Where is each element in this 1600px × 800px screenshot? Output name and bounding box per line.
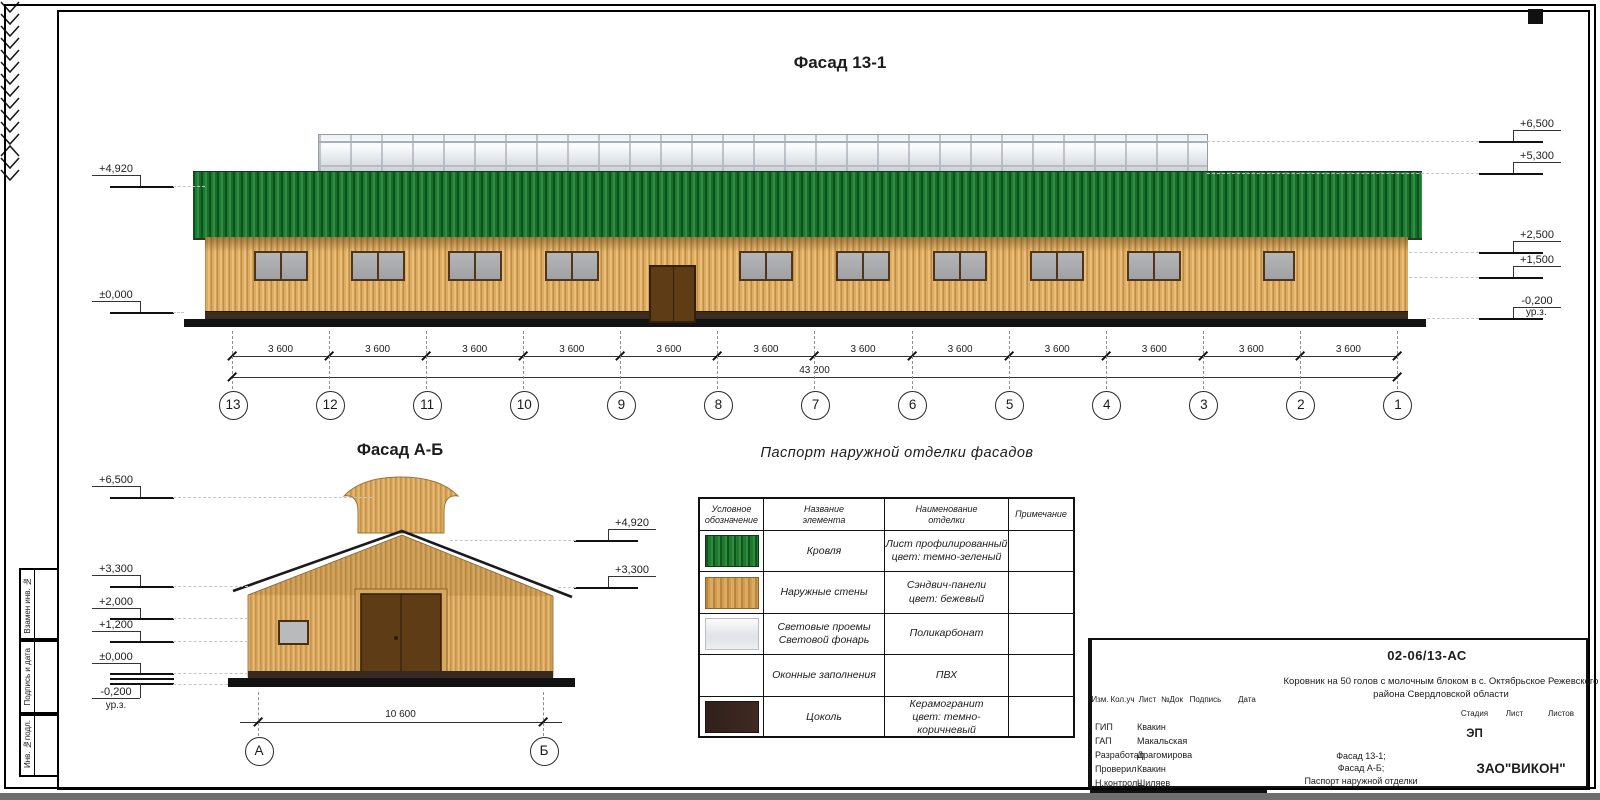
elevation-shelf: [608, 576, 656, 577]
finish-swatch-cell: [700, 614, 764, 655]
title-block-drawing-titles: Фасад 13-1; Фасад А-Б; Паспорт наружной …: [1267, 747, 1455, 790]
staff-role: ГАП: [1092, 734, 1135, 748]
dimension-segment-label: 3 600: [1009, 344, 1106, 355]
axis-bubble: 5: [995, 391, 1024, 420]
elevation-shelf: [1513, 130, 1561, 131]
axis-extension-line: [1009, 331, 1010, 389]
axis-bubble: 1: [1383, 391, 1412, 420]
axis-bubble: А: [245, 737, 274, 766]
revision-header: Лист: [1135, 692, 1160, 706]
title-block-stage-value: ЭП: [1455, 720, 1494, 747]
window-mullion: [959, 253, 961, 279]
finish-table-header: Условное обозначение: [700, 499, 764, 531]
axis-extension-line: [1106, 331, 1107, 389]
finish-material: Сэндвич-панели цвет: бежевый: [885, 572, 1009, 613]
dimension-segment-label: 3 600: [717, 344, 814, 355]
elevation-bar: [110, 641, 174, 643]
finish-swatch-cell: [700, 572, 764, 613]
elevation-label: +1,500: [1499, 254, 1575, 266]
reference-dash-line: [173, 312, 184, 313]
swatch-walls-icon: [705, 577, 759, 609]
revision-header: Подпись: [1184, 692, 1227, 706]
sheet-corner-mark: [1528, 9, 1543, 24]
facade2-gable-shade: [248, 535, 553, 596]
axis-bubble: Б: [530, 737, 559, 766]
title-block: 02-06/13-АС Коровник на 50 голов с молоч…: [1088, 638, 1588, 788]
reference-dash-line: [558, 587, 576, 588]
margin-box-vzamen: Взамен инв. №: [19, 568, 59, 642]
finish-table-title: Паспорт наружной отделки фасадов: [697, 445, 1097, 461]
reference-dash-line: [173, 618, 248, 619]
dimension-segment-label: 3 600: [620, 344, 717, 355]
elevation-label: ±0,000: [78, 289, 154, 301]
facade1-window-pair: [254, 251, 308, 281]
skylight-rail-icon: [319, 141, 1207, 143]
staff-role: ГИП: [1092, 720, 1135, 734]
axis-extension-line: [258, 692, 259, 736]
reference-dash-line: [1207, 141, 1479, 142]
elevation-riser: [1513, 130, 1514, 141]
swatch-skylight-icon: [705, 618, 759, 650]
elevation-shelf: [92, 663, 140, 664]
axis-extension-line: [912, 331, 913, 389]
margin-label: Подпись и дата: [23, 648, 32, 706]
elevation-shelf: [92, 175, 140, 176]
elevation-riser: [608, 529, 609, 540]
elevation-shelf: [92, 608, 140, 609]
dimension-total-label: 10 600: [341, 709, 461, 720]
facade2-plinth: [248, 671, 553, 678]
facade2-title: Фасад А-Б: [300, 441, 500, 460]
elevation-riser: [1513, 162, 1514, 173]
finish-note: [1009, 531, 1073, 572]
window-mullion: [1153, 253, 1155, 279]
axis-extension-line: [523, 331, 524, 389]
staff-name: Квакин: [1134, 762, 1197, 776]
elevation-bar: [1479, 318, 1543, 320]
elevation-label: +5,300: [1499, 150, 1575, 162]
elevation-riser: [140, 175, 141, 186]
ground-level-label: ур.з.: [78, 700, 154, 711]
title-block-project-name: Коровник на 50 голов с молочным блоком в…: [1267, 670, 1600, 707]
axis-extension-line: [1397, 331, 1398, 389]
revision-header: №Док: [1160, 692, 1184, 706]
staff-name: Макальская: [1134, 734, 1197, 748]
window-mullion: [280, 253, 282, 279]
staff-role: Проверил: [1092, 762, 1135, 776]
facade1-ground-line: [184, 319, 1426, 327]
dimension-segment-label: 3 600: [1106, 344, 1203, 355]
elevation-bar: [110, 312, 174, 314]
facade2-door-handle: [394, 636, 398, 640]
finish-element-name: Наружные стены: [764, 572, 885, 613]
staff-name: Драгомирова: [1134, 748, 1197, 762]
axis-bubble: 3: [1189, 391, 1218, 420]
margin-box-label-cell: Подпись и дата: [21, 640, 35, 714]
revision-header: Дата: [1227, 692, 1267, 706]
swatch-roof-icon: [705, 535, 759, 567]
axis-extension-line: [232, 331, 233, 389]
staff-role: Н.контроль: [1092, 776, 1135, 790]
reference-dash-line: [173, 497, 372, 498]
elevation-label: ±0,000: [78, 651, 154, 663]
elevation-label: +3,300: [78, 563, 154, 575]
facade1-window-pair: [545, 251, 599, 281]
dimension-line: [240, 722, 562, 723]
finish-material: Керамогранит цвет: темно-коричневый: [885, 697, 1009, 738]
finish-swatch-cell: [700, 655, 764, 696]
finish-note: [1009, 655, 1073, 696]
facade2-drawing: [220, 470, 590, 700]
margin-box-label-cell: Инв. №подл.: [21, 714, 35, 775]
elevation-label: -0,200: [1499, 295, 1575, 307]
staff-role: Разработал: [1092, 748, 1135, 762]
reference-dash-line: [173, 586, 248, 587]
window-mullion: [377, 253, 379, 279]
margin-label: Взамен инв. №: [23, 577, 32, 634]
finish-note: [1009, 697, 1073, 738]
dimension-segment-label: 3 600: [232, 344, 329, 355]
finish-note: [1009, 572, 1073, 613]
title-block-sheet-label: Лист: [1494, 707, 1535, 720]
finish-material: Поликарбонат: [885, 614, 1009, 655]
finish-element-name: Световые проемы Световой фонарь: [764, 614, 885, 655]
elevation-shelf: [92, 575, 140, 576]
facade2-window: [279, 621, 308, 644]
axis-extension-line: [426, 331, 427, 389]
reference-dash-line: [173, 641, 248, 642]
elevation-riser: [1513, 266, 1514, 277]
elevation-riser: [140, 575, 141, 586]
elevation-bar: [110, 186, 174, 188]
elevation-label: +1,200: [78, 619, 154, 631]
axis-bubble: 6: [898, 391, 927, 420]
elevation-bar: [574, 540, 638, 542]
facade1-title: Фасад 13-1: [740, 53, 940, 73]
reference-dash-line: [1427, 318, 1479, 319]
reference-dash-line: [450, 540, 576, 541]
dimension-segment-label: 3 600: [912, 344, 1009, 355]
skylight-rail-icon: [319, 165, 1207, 167]
revision-header: Изм.: [1090, 692, 1110, 706]
axis-bubble: 7: [801, 391, 830, 420]
dimension-segment-label: 3 600: [523, 344, 620, 355]
facade1-window-single: [1263, 251, 1295, 281]
margin-label: Инв. №подл.: [23, 720, 32, 768]
elevation-shelf: [92, 631, 140, 632]
axis-bubble: 10: [510, 391, 539, 420]
finish-material: ПВХ: [885, 655, 1009, 696]
finish-table-header: Название элемента: [764, 499, 885, 531]
axis-extension-line: [814, 331, 815, 389]
elevation-riser: [140, 631, 141, 641]
ground-level-label: ур.з.: [1526, 307, 1570, 318]
dimension-segment-label: 3 600: [329, 344, 426, 355]
axis-bubble: 4: [1092, 391, 1121, 420]
elevation-shelf: [1513, 241, 1561, 242]
elevation-bar: [110, 497, 174, 499]
elevation-riser: [1513, 307, 1514, 318]
margin-box-podpis: Подпись и дата: [19, 638, 59, 716]
elevation-shelf: [608, 529, 656, 530]
swatch-plinth-icon: [705, 701, 759, 733]
facade1-window-pair: [933, 251, 987, 281]
dimension-segment-label: 3 600: [1300, 344, 1397, 355]
skylight-band: [318, 134, 1208, 173]
finish-material: Лист профилированный цвет: темно-зеленый: [885, 531, 1009, 572]
elevation-shelf: [92, 486, 140, 487]
dimension-segment-label: 3 600: [814, 344, 911, 355]
reference-dash-line: [1207, 173, 1479, 174]
elevation-label: +2,500: [1499, 229, 1575, 241]
reference-dash-line: [1409, 252, 1479, 253]
elevation-bar: [110, 683, 174, 685]
axis-extension-line: [329, 331, 330, 389]
elevation-label: +4,920: [594, 517, 670, 529]
finish-table-header: Примечание: [1009, 499, 1073, 531]
axis-bubble: 8: [704, 391, 733, 420]
facade1-window-pair: [351, 251, 405, 281]
elevation-shelf: [1513, 266, 1561, 267]
finish-swatch-cell: [700, 697, 764, 738]
window-mullion: [765, 253, 767, 279]
axis-bubble: 2: [1286, 391, 1315, 420]
elevation-bar: [110, 586, 174, 588]
finish-table-header: Наименование отделки: [885, 499, 1009, 531]
title-block-stage-label: Стадия: [1455, 707, 1494, 720]
elevation-riser: [1513, 241, 1514, 252]
title-block-company: ЗАО"ВИКОН": [1455, 747, 1587, 790]
margin-box-label-cell: Взамен инв. №: [21, 570, 35, 640]
axis-bubble: 9: [607, 391, 636, 420]
dimension-segment-label: 3 600: [1203, 344, 1300, 355]
revision-header: Кол.уч: [1110, 692, 1135, 706]
axis-extension-line: [717, 331, 718, 389]
facade1-roof: [193, 171, 1422, 240]
reference-dash-line: [1409, 277, 1479, 278]
facade2-ground-line: [228, 678, 575, 687]
elevation-label: +6,500: [1499, 118, 1575, 130]
window-mullion: [571, 253, 573, 279]
elevation-shelf: [1513, 162, 1561, 163]
axis-extension-line: [1300, 331, 1301, 389]
title-block-doc-number: 02-06/13-АС: [1267, 640, 1587, 670]
staff-name: Квакин: [1134, 720, 1197, 734]
finish-element-name: Цоколь: [764, 697, 885, 738]
facade1-window-pair: [1127, 251, 1181, 281]
axis-bubble: 11: [413, 391, 442, 420]
window-mullion: [474, 253, 476, 279]
elevation-label: +4,920: [78, 163, 154, 175]
finish-element-name: Оконные заполнения: [764, 655, 885, 696]
elevation-riser: [140, 663, 141, 673]
finish-note: [1009, 614, 1073, 655]
facade1-window-pair: [1030, 251, 1084, 281]
dimension-segment-label: 3 600: [426, 344, 523, 355]
elevation-bar: [110, 673, 174, 675]
elevation-riser: [140, 608, 141, 618]
reference-dash-line: [173, 186, 205, 187]
elevation-bar: [1479, 173, 1543, 175]
elevation-bar: [110, 678, 174, 680]
elevation-riser: [140, 486, 141, 497]
elevation-label: +3,300: [594, 564, 670, 576]
facade1-door: [649, 265, 696, 323]
axis-extension-line: [620, 331, 621, 389]
finish-element-name: Кровля: [764, 531, 885, 572]
facade2-cupola: [344, 477, 458, 533]
elevation-shelf: [92, 301, 140, 302]
axis-extension-line: [543, 692, 544, 736]
margin-box-inv: Инв. №подл.: [19, 712, 59, 777]
facade1-window-pair: [739, 251, 793, 281]
drawing-sheet: Взамен инв. № Подпись и дата Инв. №подл.…: [0, 0, 1600, 793]
facade1-window-pair: [836, 251, 890, 281]
elevation-shelf: [92, 698, 140, 699]
staff-name: Шиляев: [1134, 776, 1197, 790]
reference-dash-line: [173, 684, 228, 685]
window-mullion: [1056, 253, 1058, 279]
elevation-bar: [1479, 277, 1543, 279]
reference-dash-line: [173, 673, 248, 674]
title-block-sheets-label: Листов: [1535, 707, 1587, 720]
facade1-window-pair: [448, 251, 502, 281]
window-mullion: [862, 253, 864, 279]
axis-extension-line: [1203, 331, 1204, 389]
elevation-label: +6,500: [78, 474, 154, 486]
elevation-label: +2,000: [78, 596, 154, 608]
elevation-label: -0,200: [78, 686, 154, 698]
elevation-riser: [608, 576, 609, 587]
finish-table: Условное обозначениеНазвание элементаНаи…: [698, 497, 1075, 738]
finish-swatch-cell: [700, 531, 764, 572]
elevation-riser: [140, 301, 141, 312]
axis-bubble: 12: [316, 391, 345, 420]
elevation-bar: [574, 587, 638, 589]
elevation-bar: [1479, 141, 1543, 143]
axis-bubble: 13: [219, 391, 248, 420]
